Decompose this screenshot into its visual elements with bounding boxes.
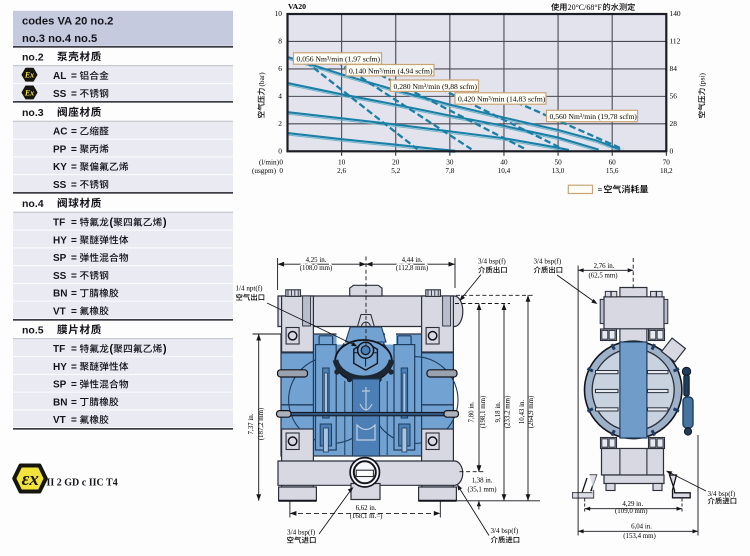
svg-text:Ex: Ex: [24, 88, 34, 97]
svg-text:=: =: [71, 344, 77, 355]
svg-text:(62,5 mm): (62,5 mm): [588, 273, 617, 280]
svg-text:28: 28: [670, 119, 678, 128]
svg-text:εx: εx: [22, 469, 40, 490]
svg-text:112: 112: [670, 36, 681, 45]
svg-text:SS: SS: [53, 271, 67, 282]
svg-text:HY: HY: [53, 362, 67, 373]
svg-text:SP: SP: [53, 253, 67, 264]
svg-text:(bar): (bar): [257, 72, 266, 87]
svg-text:20°C/68°F: 20°C/68°F: [568, 3, 603, 12]
svg-text:HY: HY: [53, 235, 67, 246]
svg-text:=: =: [71, 271, 77, 282]
svg-text:(187,2 mm): (187,2 mm): [258, 408, 265, 441]
svg-text:13,0: 13,0: [552, 167, 565, 175]
svg-text:(usgpm): (usgpm): [252, 167, 277, 175]
svg-text:SP: SP: [53, 380, 67, 391]
svg-text:3/4 bsp(f): 3/4 bsp(f): [287, 529, 316, 537]
svg-text:(35,1 mm): (35,1 mm): [467, 486, 496, 493]
svg-text:BN: BN: [53, 397, 67, 408]
svg-text:no.3: no.3: [22, 107, 44, 119]
svg-text:=: =: [71, 180, 77, 191]
svg-text:=: =: [71, 289, 77, 300]
svg-text:3/4 bsp(f): 3/4 bsp(f): [491, 527, 519, 535]
svg-text:=: =: [71, 415, 77, 426]
svg-text:2,6: 2,6: [337, 167, 346, 175]
svg-text:(: (: [110, 217, 114, 229]
svg-text:15,6: 15,6: [606, 167, 619, 175]
svg-text:VA20: VA20: [288, 2, 306, 11]
svg-text:VT: VT: [53, 415, 66, 426]
svg-text:(198,1 mm): (198,1 mm): [480, 396, 487, 429]
svg-text:(109,0 mm): (109,0 mm): [615, 508, 648, 515]
svg-text:II 2 GD c IIC T4: II 2 GD c IIC T4: [47, 478, 118, 489]
svg-text:=: =: [71, 89, 77, 100]
svg-text:(264,9 mm): (264,9 mm): [528, 396, 535, 429]
svg-text:6,62 in.: 6,62 in.: [356, 505, 377, 512]
svg-text:0: 0: [278, 146, 282, 155]
svg-text:PP: PP: [53, 144, 67, 155]
svg-text:9,18 in.: 9,18 in.: [495, 401, 502, 422]
svg-text:6,04 in.: 6,04 in.: [631, 524, 652, 531]
svg-text:(112,8 mm): (112,8 mm): [396, 265, 428, 272]
svg-text:0,280 Nm³/min (9,88 scfm): 0,280 Nm³/min (9,88 scfm): [394, 82, 478, 91]
svg-text:=: =: [71, 218, 77, 229]
svg-text:=: =: [71, 380, 77, 391]
svg-text:2: 2: [278, 119, 282, 128]
svg-text:10: 10: [338, 159, 346, 167]
svg-text:TF: TF: [53, 218, 65, 229]
svg-text:1/4 npt(f): 1/4 npt(f): [236, 285, 264, 293]
svg-text:=: =: [71, 397, 77, 408]
svg-text:60: 60: [609, 159, 617, 167]
svg-text:(l/min): (l/min): [259, 159, 280, 167]
svg-text:SS: SS: [53, 180, 67, 191]
svg-text:(233,2 mm): (233,2 mm): [504, 396, 511, 429]
svg-text:=: =: [71, 235, 77, 246]
svg-text:30: 30: [446, 159, 454, 167]
svg-text:=: =: [71, 253, 77, 264]
svg-text:TF: TF: [53, 344, 65, 355]
svg-text:6: 6: [278, 64, 282, 73]
svg-text:0,560 Nm³/min (19,78 scfm): 0,560 Nm³/min (19,78 scfm): [550, 112, 638, 121]
svg-text:no.5: no.5: [22, 324, 44, 336]
svg-text:56: 56: [670, 91, 678, 100]
svg-text:0: 0: [670, 146, 674, 155]
svg-text:4: 4: [278, 91, 282, 100]
svg-text:): ): [163, 343, 167, 355]
svg-text:=: =: [598, 185, 603, 195]
svg-text:10,43 in.: 10,43 in.: [519, 400, 526, 425]
svg-text:(108,0 mm): (108,0 mm): [300, 265, 333, 272]
svg-text:4,25 in.: 4,25 in.: [306, 257, 327, 264]
svg-text:7,80 in.: 7,80 in.: [469, 401, 476, 422]
svg-text:0: 0: [279, 159, 283, 167]
svg-text:no.4: no.4: [22, 198, 44, 210]
svg-text:): ): [163, 217, 167, 229]
svg-text:4,44 in.: 4,44 in.: [402, 257, 423, 264]
svg-text:3/4 bsp(f): 3/4 bsp(f): [478, 258, 506, 266]
svg-text:SS: SS: [53, 89, 67, 100]
svg-text:=: =: [71, 127, 77, 138]
svg-text:10,4: 10,4: [498, 167, 511, 175]
svg-text:0: 0: [279, 167, 283, 175]
svg-text:0,420 Nm³/min (14,83 scfm): 0,420 Nm³/min (14,83 scfm): [458, 95, 546, 104]
svg-text:2,76 in.: 2,76 in.: [594, 263, 615, 270]
svg-text:=: =: [71, 362, 77, 373]
svg-text:BN: BN: [53, 289, 67, 300]
svg-text:=: =: [71, 306, 77, 317]
svg-text:(168,1 m.=): (168,1 m.=): [350, 513, 383, 520]
svg-text:7,8: 7,8: [445, 167, 454, 175]
svg-text:10: 10: [275, 9, 283, 18]
svg-text:no.2: no.2: [22, 51, 44, 63]
svg-text:codes VA 20 no.2: codes VA 20 no.2: [22, 16, 113, 28]
svg-text:20: 20: [392, 159, 400, 167]
svg-text:1,38 in.: 1,38 in.: [472, 477, 493, 484]
svg-text:=: =: [71, 162, 77, 173]
svg-text:5,2: 5,2: [391, 167, 400, 175]
svg-text:no.3 no.4 no.5: no.3 no.4 no.5: [22, 33, 97, 45]
svg-text:18,2: 18,2: [660, 167, 673, 175]
svg-text:84: 84: [670, 64, 678, 73]
svg-text:140: 140: [670, 9, 681, 18]
svg-text:KY: KY: [53, 162, 67, 173]
svg-text:(psi): (psi): [698, 73, 707, 87]
svg-text:3/4 bsp(f): 3/4 bsp(f): [534, 258, 562, 266]
svg-text:70: 70: [663, 159, 671, 167]
svg-text:=: =: [71, 71, 77, 82]
svg-text:0,140 Nm³/min (4,94 scfm): 0,140 Nm³/min (4,94 scfm): [349, 66, 433, 75]
svg-text:7,37 in.: 7,37 in.: [248, 413, 255, 434]
svg-text:=: =: [71, 144, 77, 155]
svg-text:50: 50: [554, 159, 562, 167]
svg-text:AL: AL: [53, 71, 66, 82]
svg-text:(153,4 mm): (153,4 mm): [623, 533, 656, 540]
svg-text:0,056 Nm³/min (1,97 scfm): 0,056 Nm³/min (1,97 scfm): [297, 55, 381, 64]
svg-text:3/4 bsp(f): 3/4 bsp(f): [708, 490, 736, 498]
svg-text:40: 40: [500, 159, 508, 167]
svg-text:VT: VT: [53, 306, 66, 317]
svg-text:8: 8: [278, 36, 282, 45]
svg-text:Ex: Ex: [24, 71, 34, 80]
svg-text:AC: AC: [53, 127, 67, 138]
svg-text:(: (: [110, 343, 114, 355]
